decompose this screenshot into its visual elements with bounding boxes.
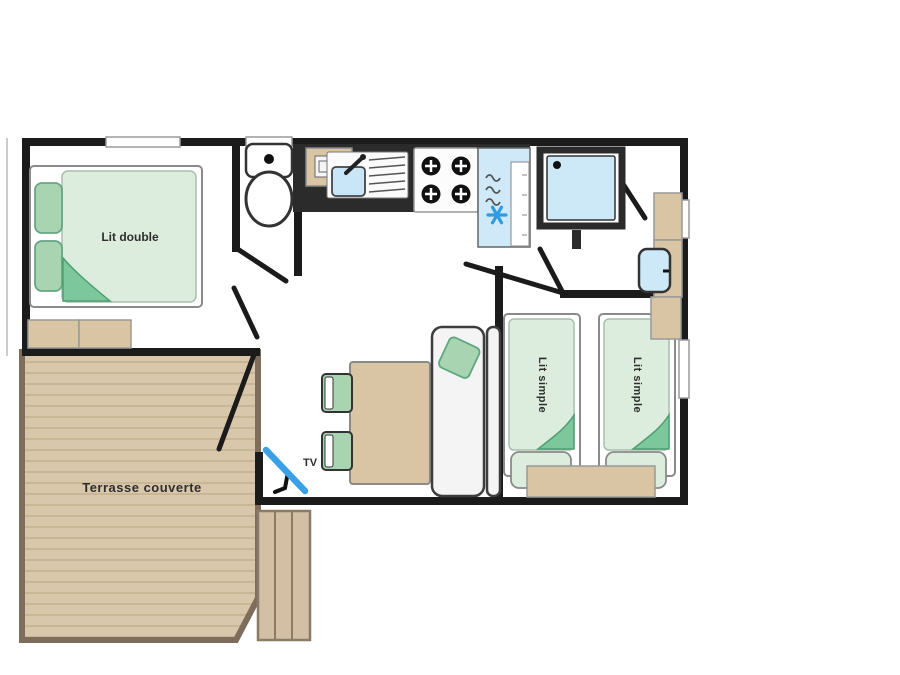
double-bed-pillow-2: [35, 241, 62, 291]
wall-bottom: [255, 497, 688, 505]
chair-2: [322, 432, 352, 470]
window-right-bottom: [679, 340, 689, 398]
dresser-1: [28, 320, 79, 348]
wall-bedroom-bottom: [22, 348, 260, 356]
chair-1: [322, 374, 352, 412]
terrace-steps: [258, 511, 310, 640]
bedroom-double-label: Lit double: [101, 230, 159, 244]
fridge-icon: [478, 148, 530, 247]
tv-label: TV: [303, 457, 318, 469]
bench-between-beds: [527, 466, 655, 497]
wall-tv-corner: [255, 452, 263, 505]
wardrobe-bedroom-2: [651, 297, 681, 339]
dresser-2: [79, 320, 131, 348]
wardrobe-top-right: [654, 193, 682, 240]
washbasin-icon: [639, 249, 670, 292]
bedroom-single-2-label: Lit simple: [631, 357, 643, 413]
floorplan-page: Terrasse couverte: [0, 0, 900, 675]
terrace-deck: [22, 352, 258, 640]
toilet-icon: [246, 144, 292, 226]
terrace-label: Terrasse couverte: [82, 480, 202, 495]
wall-double-bedroom-right: [232, 138, 240, 252]
bedroom-single-1-label: Lit simple: [536, 357, 548, 413]
sofa: [432, 327, 500, 496]
stove-icon: [414, 148, 478, 212]
bedroom-single-1: Lit simple: [504, 314, 580, 488]
double-bed-pillow-1: [35, 183, 62, 233]
window-bedroom-double: [106, 137, 180, 147]
dining-table: [350, 362, 430, 484]
kitchen-sink-icon: [327, 152, 408, 198]
floorplan-svg: Terrasse couverte: [0, 0, 900, 675]
